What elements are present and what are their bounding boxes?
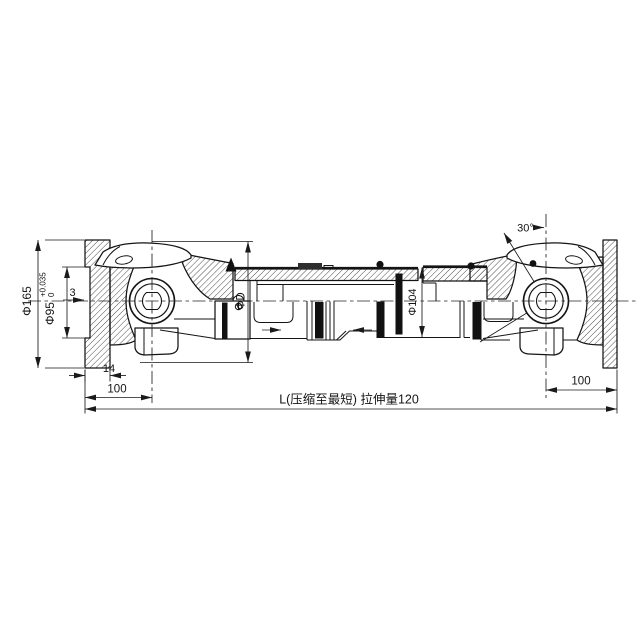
dim-flange-thickness-label: 14 xyxy=(103,363,115,375)
spline-inner-lines xyxy=(250,281,394,302)
right-flange-plate xyxy=(603,240,617,368)
dim-pilot-diameter: Φ95 +0.035 0 xyxy=(35,267,89,338)
dim-tube-od-label: Φ104 xyxy=(407,288,419,315)
right-universal-joint xyxy=(470,233,603,355)
dim-left-100: 100 xyxy=(85,384,152,398)
right-flange xyxy=(603,240,617,368)
dim-right-100: 100 xyxy=(546,376,617,391)
technical-drawing-canvas: Φ165 Φ95 +0.035 0 3 14 100 xyxy=(0,0,643,643)
seal-ring-5 xyxy=(473,302,481,340)
seal-ring-3 xyxy=(377,302,385,339)
balance-weight-boss xyxy=(298,263,322,269)
inner-tube-wall-section xyxy=(235,269,418,281)
grease-nipple-dot-2 xyxy=(467,262,474,269)
grease-nipple-dot-1 xyxy=(376,261,383,268)
seal-ring-1 xyxy=(222,303,228,339)
dim-swing-angle-label: 30° xyxy=(517,223,534,235)
dim-pilot-depth-label: 3 xyxy=(69,287,75,299)
cardan-shaft-drawing: Φ165 Φ95 +0.035 0 3 14 100 xyxy=(0,0,643,643)
dim-flange-od-label: Φ165 xyxy=(20,286,34,316)
dim-overall-length-label: L(压缩至最短) 拉伸量120 xyxy=(279,392,419,407)
grease-nipple-dot-3 xyxy=(530,260,537,267)
dim-swing-angle: 30° xyxy=(517,223,544,235)
dim-pilot-depth: 3 xyxy=(63,287,84,300)
dim-swing-diameter-label: ΦD xyxy=(236,292,248,309)
sleeve-window-left xyxy=(254,302,293,323)
dim-left-100-label: 100 xyxy=(107,384,126,396)
dim-right-100-label: 100 xyxy=(571,376,590,388)
right-sleeve-yoke-section xyxy=(470,254,517,299)
seal-ring-2 xyxy=(315,302,324,339)
dim-overall-length: L(压缩至最短) 拉伸量120 xyxy=(85,370,617,414)
seal-ring-4 xyxy=(396,274,403,335)
